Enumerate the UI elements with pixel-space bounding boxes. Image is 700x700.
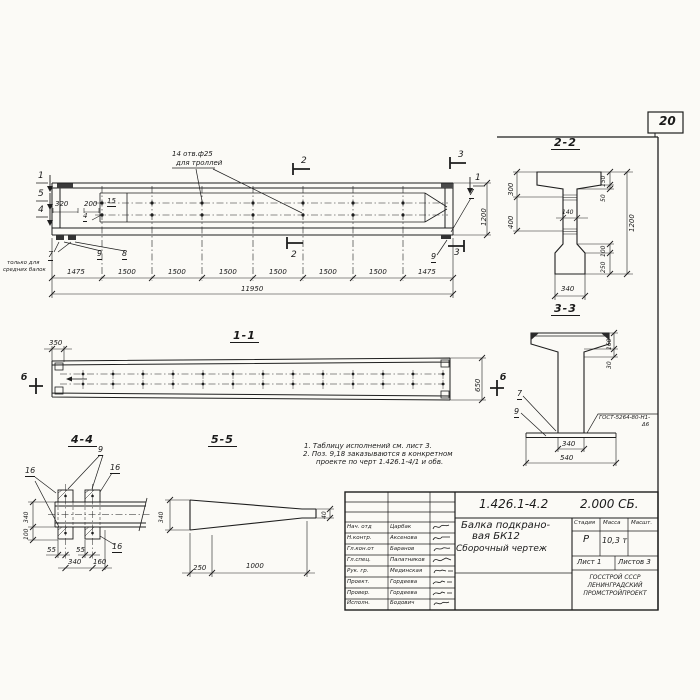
drawing-title-line3: Сборочный чертеж: [456, 545, 547, 554]
marker-b-right: б: [500, 374, 506, 383]
page-number: 20: [659, 115, 676, 127]
dim-250: 250: [601, 262, 607, 273]
dim-total-11950: 11950: [241, 286, 263, 293]
dim-seg-1: 1475: [67, 269, 85, 276]
pos-label-16-right: 16: [110, 464, 120, 474]
view-4-4-title: 4-4: [68, 434, 97, 447]
sheet-number-label: Лист 1: [577, 559, 601, 566]
pos-label-8: 8: [122, 250, 127, 260]
sig-name-7: Гордеева: [390, 591, 417, 597]
dim-150: 150: [601, 176, 607, 187]
pos-label-15: 15: [107, 198, 116, 207]
hole-callout-line1: 14 отв.ф25: [172, 151, 213, 158]
pos-label-7-section33: 7: [517, 390, 522, 400]
dim-1200-facade: 1200: [481, 208, 488, 226]
dim-250-view55: 250: [193, 565, 206, 572]
dim-400: 400: [508, 216, 515, 229]
dim-seg-3: 1500: [168, 269, 186, 276]
dim-140: 140: [562, 210, 573, 216]
drawing-title-line2: вая БК12: [472, 532, 520, 542]
section-mark-3-top: 3: [458, 151, 464, 160]
note-line-2: 2. Поз. 9,18 заказываются в конкретном: [303, 451, 453, 458]
dim-160-view44: 160: [93, 559, 106, 566]
marker-b-left: б: [21, 374, 27, 383]
section-3-3-linework: [521, 330, 658, 466]
scale-label: Масшт.: [631, 521, 652, 527]
organization-block: ГОССТРОЙ СССР ЛЕНИНГРАДСКИЙ ПРОМСТРОЙПРО…: [572, 574, 658, 598]
mass-label: Масса: [603, 521, 621, 527]
dim-seg-2: 1500: [118, 269, 136, 276]
pos-label-9-right: 9: [431, 253, 436, 263]
dim-650: 650: [475, 379, 482, 392]
dim-seg-4: 1500: [219, 269, 237, 276]
sig-role-7: Провер.: [347, 591, 370, 597]
doc-code: 2.000 СБ.: [580, 498, 639, 510]
dim-100-view44: 100: [24, 529, 30, 540]
sig-role-8: Исполн.: [347, 601, 370, 607]
sig-role-4: Гл.спец.: [347, 558, 371, 564]
weld-size-callout: Δ6: [642, 423, 649, 429]
org-line-1: ГОССТРОЙ СССР: [572, 574, 658, 582]
pos-label-16-left: 16: [25, 467, 35, 477]
dim-40: 40: [322, 511, 328, 519]
pos-label-4: 4: [83, 213, 87, 222]
section-mark-4-left: 4: [38, 206, 44, 215]
sig-name-6: Гордеева: [390, 580, 417, 586]
pos-label-9-section33: 9: [514, 408, 519, 418]
sig-name-8: Бодович: [390, 601, 414, 607]
mass-value: 10,3 т: [602, 537, 627, 545]
org-line-2: ЛЕНИНГРАДСКИЙ: [572, 582, 658, 590]
section-mark-2-bottom: 2: [291, 251, 297, 260]
dim-seg-8: 1475: [418, 269, 436, 276]
sig-role-5: Рук. гр.: [347, 569, 369, 575]
sig-name-1: Царбак: [390, 525, 411, 531]
sig-name-4: Палатников: [390, 558, 425, 564]
dim-200: 200: [84, 201, 97, 208]
dim-340-vert-view44: 340: [24, 512, 30, 523]
drawing-title-line1: Балка подкрано-: [461, 521, 550, 531]
section-2-2-title: 2-2: [551, 137, 580, 150]
dim-340-section33: 340: [562, 441, 575, 448]
dim-540: 540: [560, 455, 573, 462]
stage-value: Р: [583, 535, 589, 545]
dim-100: 100: [601, 246, 607, 257]
sheet-count-label: Листов 3: [618, 559, 651, 566]
org-line-3: ПРОМСТРОЙПРОЕКТ: [572, 590, 658, 598]
dim-340-horiz-view44: 340: [68, 559, 81, 566]
sig-name-2: Аксенова: [390, 536, 417, 542]
sig-role-6: Проект.: [347, 580, 370, 586]
sig-role-1: Нач. отд: [347, 525, 372, 531]
dim-1000: 1000: [246, 563, 264, 570]
sig-role-3: Гл.кон.от: [347, 547, 374, 553]
weld-gost-callout: ГОСТ-5264-80-Н1-: [599, 416, 650, 422]
dim-320: 320: [55, 201, 68, 208]
doc-number: 1.426.1-4.2: [479, 498, 548, 510]
note-line-3: проекте по черт 1.426.1-4/1 и обв.: [316, 459, 443, 466]
dim-350: 350: [49, 340, 62, 347]
pos-label-7-right: 7: [469, 189, 474, 199]
sig-name-5: Мединская: [390, 569, 422, 575]
note-middle-beams-2: средних балок: [3, 268, 46, 274]
section-mark-2-top: 2: [301, 157, 307, 166]
pos-label-9-view44: 9: [98, 446, 103, 456]
section-2-2-linework: [513, 169, 633, 300]
dim-seg-7: 1500: [369, 269, 387, 276]
dim-300: 300: [508, 183, 515, 196]
facade-linework: [36, 157, 491, 298]
sig-name-3: Баранов: [390, 547, 414, 553]
dim-160: 160: [607, 339, 613, 350]
dim-seg-6: 1500: [319, 269, 337, 276]
section-mark-1-right: 1: [475, 174, 481, 183]
dim-340-view55: 340: [159, 512, 165, 523]
dim-50: 50: [601, 194, 607, 202]
pos-label-9-left: 9: [97, 250, 102, 260]
note-middle-beams-1: только для: [7, 261, 39, 267]
drawing-sheet: 20 14 отв.ф25 для троллей 1 5 4 1 2 2 3 …: [0, 0, 700, 700]
section-mark-1-left: 1: [38, 172, 44, 181]
pos-label-16-bottom: 16: [112, 543, 122, 553]
view-5-5-title: 5-5: [208, 434, 237, 447]
section-3-3-title: 3-3: [551, 303, 580, 316]
view-1-1-linework: [29, 346, 504, 403]
dim-55-b: 55: [76, 547, 85, 554]
dim-seg-5: 1500: [269, 269, 287, 276]
stage-label: Стадия: [574, 521, 595, 527]
dim-55-a: 55: [47, 547, 56, 554]
section-mark-3-bottom: 3: [454, 249, 460, 258]
pos-label-7-left: 7: [48, 251, 53, 261]
section-mark-5-left: 5: [38, 190, 44, 199]
dim-30: 30: [607, 361, 613, 369]
dim-1200-section: 1200: [629, 214, 636, 232]
view-1-1-title: 1-1: [230, 330, 259, 343]
dim-340-section22: 340: [561, 286, 574, 293]
hole-callout-line2: для троллей: [176, 160, 222, 167]
note-line-1: 1. Таблицу исполнений см. лист 3.: [304, 443, 432, 450]
sig-role-2: Н.контр.: [347, 536, 372, 542]
